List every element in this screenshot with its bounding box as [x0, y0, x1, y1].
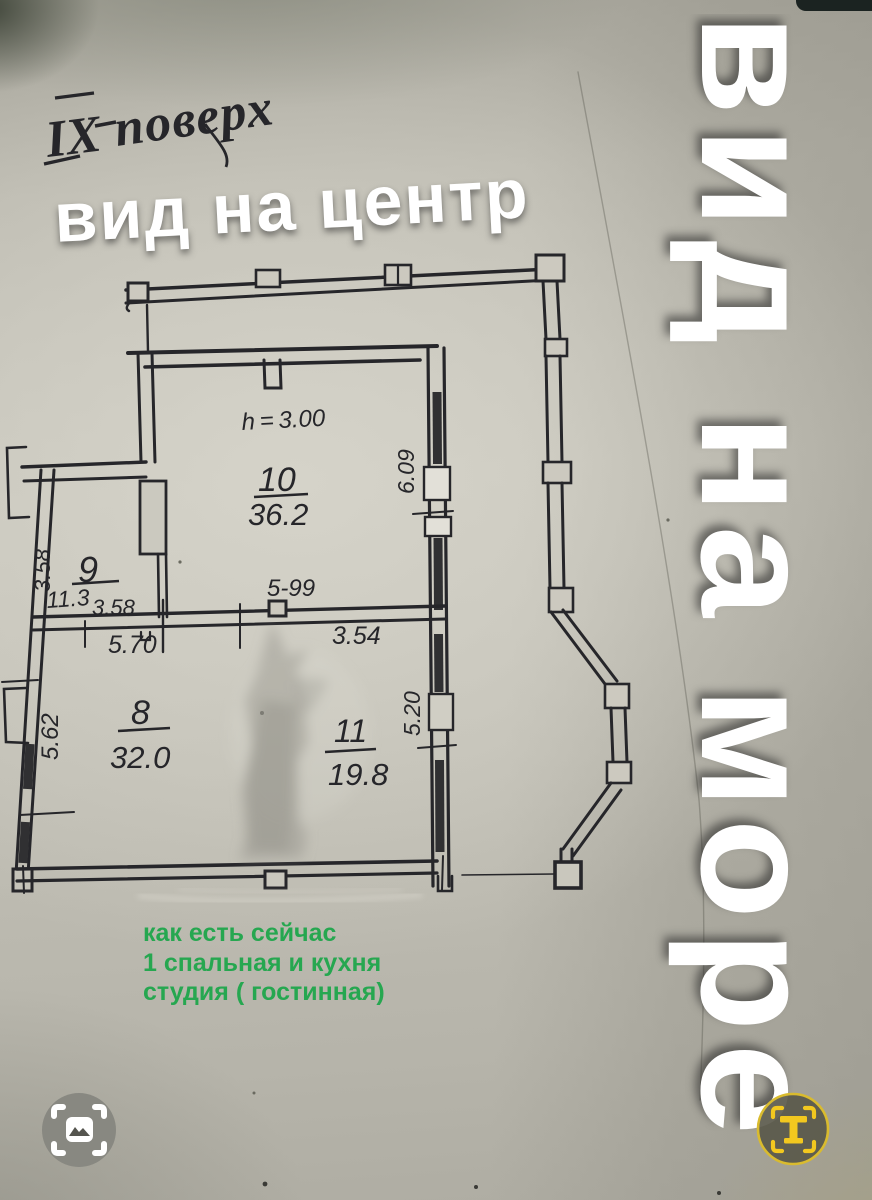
svg-text:5-99: 5-99 [267, 575, 315, 602]
svg-text:36.2: 36.2 [248, 497, 308, 532]
svg-text:10: 10 [258, 461, 296, 499]
svg-text:3.54: 3.54 [332, 622, 381, 650]
svg-text:ІХ: ІХ [42, 105, 106, 169]
svg-text:3.58: 3.58 [92, 595, 136, 620]
svg-text:5.70: 5.70 [108, 631, 157, 659]
svg-text:h = 3.00: h = 3.00 [241, 405, 327, 436]
svg-text:8: 8 [131, 694, 150, 732]
svg-text:5.62: 5.62 [37, 713, 64, 760]
svg-text:32.0: 32.0 [110, 740, 170, 775]
svg-text:5.20: 5.20 [399, 691, 425, 736]
svg-text:3.58: 3.58 [30, 548, 55, 592]
svg-text:19.8: 19.8 [328, 757, 389, 792]
svg-text:поверх: поверх [111, 79, 278, 158]
svg-text:11: 11 [334, 713, 367, 749]
svg-text:6.09: 6.09 [393, 449, 419, 494]
